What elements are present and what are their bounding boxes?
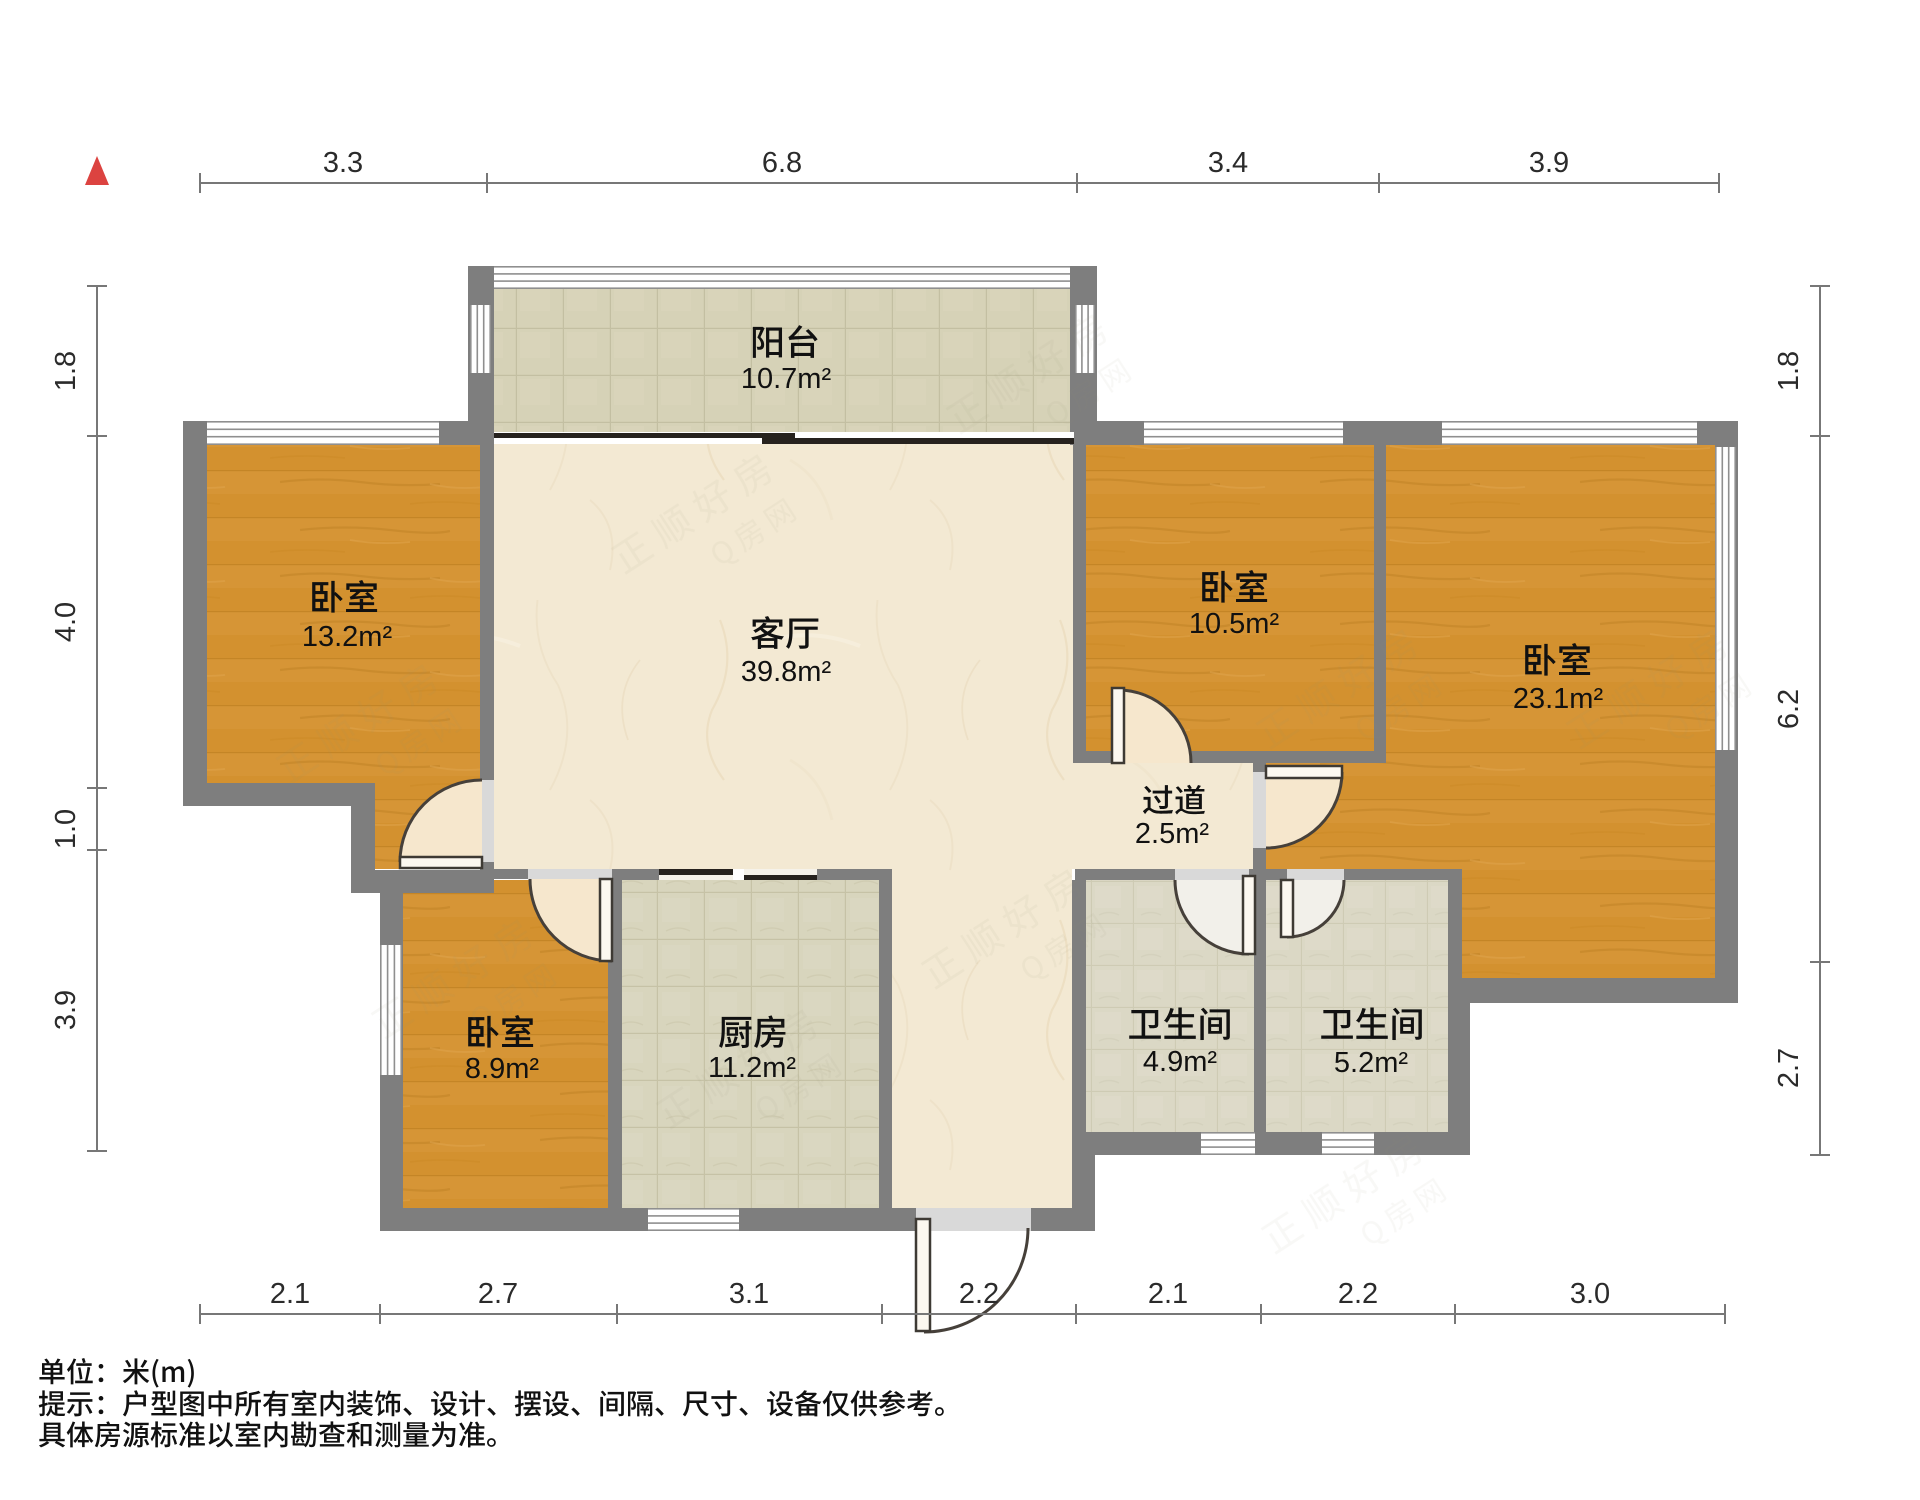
svg-text:5.2m²: 5.2m²	[1334, 1047, 1408, 1079]
svg-text:10.5m²: 10.5m²	[1189, 608, 1280, 640]
svg-text:3.9: 3.9	[1529, 147, 1569, 179]
svg-text:1.8: 1.8	[1773, 351, 1805, 391]
svg-text:39.8m²: 39.8m²	[741, 656, 832, 688]
svg-text:3.1: 3.1	[729, 1278, 769, 1310]
svg-text:6.8: 6.8	[762, 147, 802, 179]
svg-text:8.9m²: 8.9m²	[465, 1053, 539, 1085]
svg-text:2.5m²: 2.5m²	[1135, 818, 1209, 850]
svg-text:3.4: 3.4	[1208, 147, 1248, 179]
svg-text:4.9m²: 4.9m²	[1143, 1046, 1217, 1078]
svg-text:10.7m²: 10.7m²	[741, 363, 832, 395]
svg-text:3.0: 3.0	[1570, 1278, 1610, 1310]
svg-text:1.8: 1.8	[50, 351, 82, 391]
svg-text:2.7: 2.7	[478, 1278, 518, 1310]
svg-text:3.9: 3.9	[50, 990, 82, 1030]
svg-text:13.2m²: 13.2m²	[302, 621, 393, 653]
svg-text:2.2: 2.2	[1338, 1278, 1378, 1310]
svg-text:2.1: 2.1	[270, 1278, 310, 1310]
svg-text:1.0: 1.0	[50, 809, 82, 849]
svg-text:3.3: 3.3	[323, 147, 363, 179]
svg-text:2.1: 2.1	[1148, 1278, 1188, 1310]
svg-text:6.2: 6.2	[1773, 689, 1805, 729]
svg-text:4.0: 4.0	[50, 602, 82, 642]
svg-text:2.2: 2.2	[959, 1278, 999, 1310]
svg-text:2.7: 2.7	[1773, 1048, 1805, 1088]
